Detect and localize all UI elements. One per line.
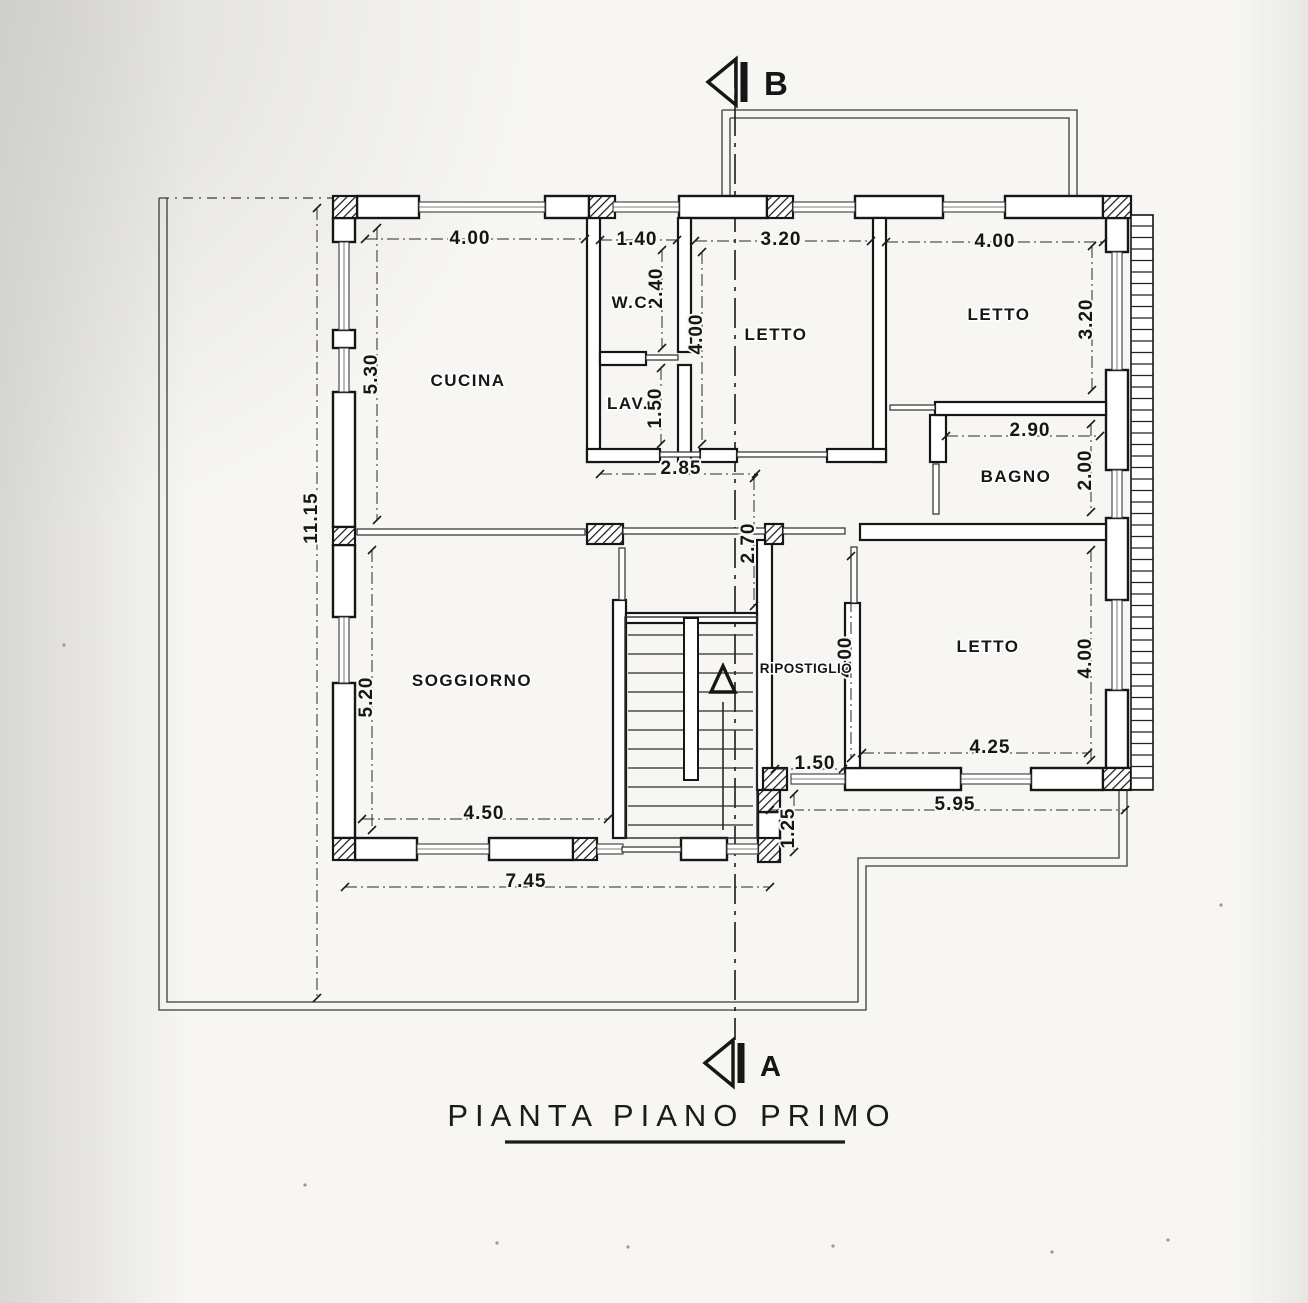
wall-segment [679,196,767,218]
column-hatched [589,196,615,218]
dimension-label: 11.15 [301,492,322,544]
wall-segment [489,838,573,860]
door-leaf [783,528,845,534]
wall-segment [333,218,355,242]
wall-segment [855,196,943,218]
column-hatched [333,196,357,218]
column-hatched [1103,768,1131,790]
hatched-strip-group [1131,215,1153,790]
dimension-label: 4.00 [686,314,707,355]
door-leaf [619,548,625,600]
dimension-label: 3.20 [1076,299,1097,340]
interior-wall-segment [827,449,886,462]
section-arrow-a-icon [705,1040,733,1086]
wall-segment [1031,768,1103,790]
wall-segment [545,196,589,218]
wall-segment [355,838,417,860]
dimension-tick [1087,508,1095,516]
dimension-tick [1096,432,1104,440]
section-label-b: B [764,65,788,102]
dimension-label: 2.90 [1010,420,1051,441]
door-leaf [933,464,939,514]
room-label: RIPOSTIGLIO [760,661,853,676]
room-label: BAGNO [981,467,1052,486]
room-labels-group: CUCINAW.C.LAV.LETTOLETTOBAGNOSOGGIORNORI… [412,293,1052,690]
interior-wall-segment [587,218,600,462]
column-hatched [587,524,623,544]
dimension-tick [368,826,376,834]
dimension-label: 4.00 [975,231,1016,252]
stair-stringer [684,618,698,780]
column-hatched [333,527,355,545]
section-arrow-b: B [708,59,788,105]
column-hatched [1103,196,1131,218]
door-leaf [357,529,585,535]
dimension-label: 2.85 [661,458,702,479]
section-arrow-a: A [705,1040,781,1086]
wall-segment [333,683,355,838]
dimension-label: 2.70 [738,523,759,564]
wall-segment [758,812,780,840]
page-title: PIANTA PIANO PRIMO [447,1098,896,1133]
wall-segment [1106,690,1128,768]
column-hatched [767,196,793,218]
scan-speckle [303,1183,306,1186]
dimension-label: 4.50 [464,803,505,824]
column-hatched [573,838,597,860]
scan-speckle [1050,1250,1053,1253]
scan-speckle [831,1244,834,1247]
room-label: LAV. [607,394,649,413]
interior-wall-segment [860,524,1106,540]
column-hatched [763,768,787,790]
dimension-label: 3.20 [761,229,802,250]
dimension-label: 5.20 [356,677,377,718]
dimension-label: 4.00 [1075,638,1096,679]
interior-wall-segment [600,352,646,365]
door-leaf [890,405,935,410]
room-label: LETTO [957,637,1020,656]
dimension-label: 5.30 [361,354,382,395]
scan-speckle [495,1241,498,1244]
column-hatched [758,838,780,862]
interior-wall-segment [935,402,1106,415]
room-label: W.C. [612,293,655,312]
interior-wall-segment [873,218,886,462]
wall-segment [1106,370,1128,470]
stair-up-arrow-icon [711,666,735,692]
dimension-label: 4.00 [450,228,491,249]
door-leaf [737,452,827,457]
wall-segment [1005,196,1103,218]
dimension-label: 5.95 [935,794,976,815]
interior-wall-segment [700,449,737,462]
drawing-title: PIANTA PIANO PRIMO [447,1098,896,1142]
room-label: SOGGIORNO [412,671,532,690]
floor-plan-canvas: 4.001.403.204.002.404.005.301.503.202.90… [0,0,1308,1303]
dimension-label: 1.40 [617,229,658,250]
room-label: LETTO [968,305,1031,324]
scan-speckles-group [62,643,1222,1253]
door-leaf [622,847,681,852]
wall-segment [333,330,355,348]
wall-segment [1106,518,1128,600]
wall-segment [681,838,727,860]
room-label: LETTO [745,325,808,344]
wall-segment [1106,218,1128,252]
door-leaf [660,452,700,457]
scanned-floor-plan-page: 4.001.403.204.002.404.005.301.503.202.90… [0,0,1308,1303]
wall-segment [845,768,961,790]
column-hatched [333,838,355,860]
column-hatched [758,790,780,812]
interior-wall-segment [845,603,860,768]
section-label-a: A [760,1051,781,1083]
dimension-label: 4.25 [970,737,1011,758]
wall-segment [333,392,355,527]
dimension-label: 7.45 [506,871,547,892]
wall-segment [357,196,419,218]
wall-segment [333,545,355,617]
scan-speckle [1219,903,1222,906]
section-arrow-b-icon [708,59,736,105]
interior-wall-segment [678,365,691,462]
dimension-label: 2.00 [1075,450,1096,491]
scan-speckle [626,1245,629,1248]
dimension-label: 1.25 [778,808,799,849]
room-label: CUCINA [430,371,505,390]
dimension-tick [698,440,706,448]
staircase-group [625,617,757,838]
dimension-label: 1.50 [795,753,836,774]
dimension-labels-group: 4.001.403.204.002.404.005.301.503.202.90… [301,228,1097,892]
interior-wall-segment [587,449,660,462]
scan-speckle [62,643,65,646]
door-leaf [646,355,678,360]
interior-wall-segment [613,600,626,838]
column-hatched [765,524,783,544]
scan-speckle [1166,1238,1169,1241]
